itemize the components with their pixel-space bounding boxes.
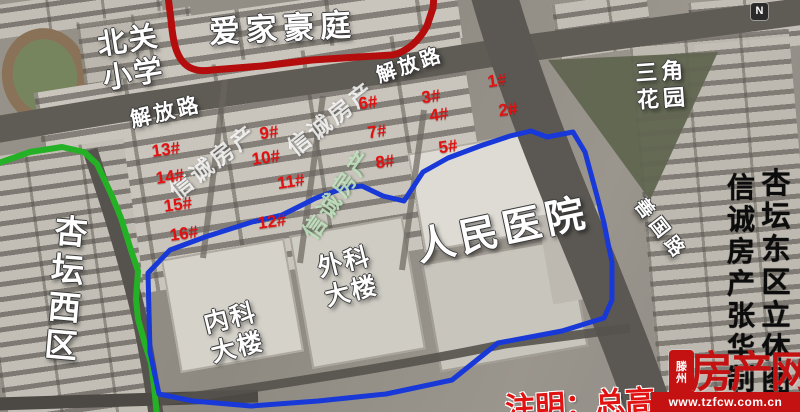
logo-city-char: 滕 — [676, 361, 687, 373]
building-number-2: 2# — [497, 99, 519, 121]
logo-url: www.tzfcw.com.cn — [651, 392, 800, 412]
tzfcw-logo: 滕州 房产网 www.tzfcw.com.cn — [640, 336, 800, 412]
building-number-9: 9# — [258, 122, 280, 144]
vertical-text-char: 立 — [760, 300, 793, 333]
building-number-15: 15# — [163, 193, 194, 217]
building-number-14: 14# — [155, 165, 186, 189]
vertical-text-char: 东 — [760, 234, 793, 267]
vertical-text-char: 区 — [760, 267, 793, 300]
logo-site-name: 房产网 — [690, 338, 800, 400]
vertical-text-char: 房 — [725, 236, 757, 268]
map-label-sanjiao-garden: 三角花园 — [634, 56, 690, 113]
building-number-16: 16# — [169, 222, 200, 246]
satellite-map: 爱家豪庭北关小学解放路解放路三角花园善国路人民医院外科大楼内科大楼杏坛西区1#2… — [0, 0, 800, 412]
vertical-text-char: 信 — [725, 172, 757, 204]
logo-city-char: 州 — [676, 373, 687, 385]
map-label-beiguan-school: 北关小学 — [95, 20, 167, 97]
map-label-line: 区 — [43, 325, 79, 366]
building-number-10: 10# — [251, 146, 282, 170]
vertical-text-char: 杏 — [760, 168, 793, 201]
vertical-text-char: 产 — [725, 268, 757, 300]
vertical-text-char: 诚 — [725, 204, 757, 236]
map-label-line: 坛 — [50, 250, 86, 291]
building-number-12: 12# — [257, 210, 288, 234]
building-number-6: 6# — [357, 92, 379, 114]
vertical-text-char: 坛 — [760, 201, 793, 234]
building-number-11: 11# — [276, 170, 306, 194]
vertical-text-char: 张 — [725, 300, 757, 332]
building-number-1: 1# — [486, 70, 508, 92]
map-label-line: 三角 — [634, 56, 688, 87]
building-number-7: 7# — [366, 121, 388, 143]
map-label-line: 西 — [46, 288, 82, 329]
building-number-13: 13# — [151, 138, 182, 162]
map-label-line: 花园 — [636, 83, 690, 114]
building-number-8: 8# — [374, 151, 396, 173]
building-number-5: 5# — [437, 136, 459, 158]
building-number-4: 4# — [428, 104, 450, 126]
compass-north-icon: N — [751, 3, 768, 20]
map-label-line: 杏 — [53, 212, 89, 253]
